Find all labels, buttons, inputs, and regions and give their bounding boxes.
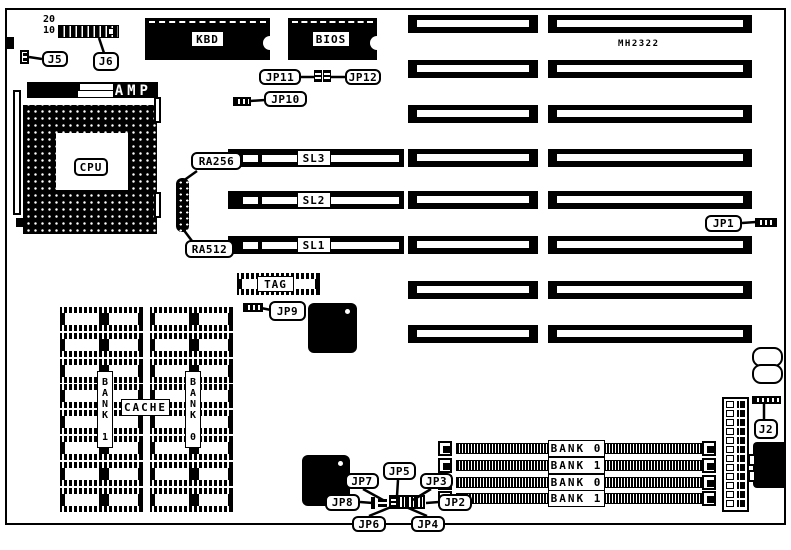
motherboard-diagram: 20 10 KBD BIOS AMP CPU TAG <box>0 0 791 550</box>
cache-chip <box>150 462 233 486</box>
power-pin <box>737 464 745 471</box>
chipset-qfp-upper <box>308 303 357 353</box>
kbd-chip-dash-line <box>149 21 266 23</box>
simm-latch-left <box>438 458 452 473</box>
power-pin <box>737 446 745 453</box>
isa-slot <box>408 281 538 299</box>
power-pin-hole <box>726 428 734 435</box>
power-pin <box>737 491 745 498</box>
cache-label: CACHE <box>121 399 170 416</box>
slot-label-sl2: SL2 <box>297 192 331 208</box>
amp-regulator: AMP <box>27 82 158 100</box>
power-pin-hole <box>726 464 734 471</box>
slot-label-sl3: SL3 <box>297 150 331 166</box>
power-pin <box>737 401 745 408</box>
amp-pad-1 <box>80 84 113 90</box>
cache-chip <box>60 488 143 512</box>
pin-number-10: 10 <box>38 25 55 36</box>
jp12-jumper <box>323 70 331 82</box>
ra-header <box>176 178 189 232</box>
din-notch-1 <box>748 454 756 466</box>
callout-tag-jp9: JP9 <box>269 301 306 321</box>
isa-slot <box>408 60 538 78</box>
isa-slot <box>548 15 752 33</box>
power-pin-hole <box>726 410 734 417</box>
left-edge-connector <box>13 90 21 215</box>
isa-slot <box>548 236 752 254</box>
callout-tag-jp4: JP4 <box>411 516 445 532</box>
isa-slot <box>408 325 538 343</box>
callout-tag-jp10: JP10 <box>264 91 307 107</box>
callout-tag-jp1: JP1 <box>705 215 742 232</box>
slot-key-notch <box>243 242 258 249</box>
isa-slot <box>408 191 538 209</box>
power-pin-hole <box>726 491 734 498</box>
isa-slot <box>408 149 538 167</box>
j6-pin1-mark <box>108 28 114 35</box>
pin-number-20: 20 <box>38 14 55 25</box>
local-bus-slot-sl2: SL2 <box>228 191 404 209</box>
bios-chip-label: BIOS <box>312 31 350 47</box>
local-bus-slot-sl3: SL3 <box>228 149 404 167</box>
isa-slot <box>408 105 538 123</box>
jumper-cell <box>407 495 416 509</box>
callout-tag-ra256: RA256 <box>191 152 242 170</box>
simm-bank-label: BANK 1 <box>548 490 605 507</box>
isa-slot <box>548 281 752 299</box>
bios-chip-notch <box>370 36 378 50</box>
jumper-block-dash1 <box>378 499 387 502</box>
callout-tag-jp3: JP3 <box>420 473 453 489</box>
cache-chip <box>60 307 143 331</box>
j5-connector <box>20 50 29 64</box>
cache-chip <box>60 333 143 357</box>
cache-bank0-label: BANK 0 <box>185 371 201 448</box>
power-pin <box>737 419 745 426</box>
isa-slot <box>548 149 752 167</box>
simm-bank-label: BANK 1 <box>548 457 605 474</box>
slot-key-notch <box>243 155 258 162</box>
local-bus-slot-sl1: SL1 <box>228 236 404 254</box>
power-pin <box>737 482 745 489</box>
callout-tag-jp8: JP8 <box>325 494 360 511</box>
board-edge-stub <box>5 37 14 49</box>
callout-tag-jp11: JP11 <box>259 69 301 85</box>
callout-tag-j5: J5 <box>42 51 68 67</box>
isa-slot <box>408 15 538 33</box>
callout-tag-jp6: JP6 <box>352 516 386 532</box>
simm-bank-label: BANK 0 <box>548 474 605 491</box>
jp11-jumper <box>314 70 322 82</box>
power-pin <box>737 500 745 507</box>
simm-bank-label: BANK 0 <box>548 440 605 457</box>
cpu-label: CPU <box>74 158 108 176</box>
kbd-chip-label: KBD <box>191 31 224 47</box>
power-connector <box>722 397 749 512</box>
jumper-cell <box>389 495 398 509</box>
j2-connector <box>752 396 781 404</box>
power-pin-hole <box>726 473 734 480</box>
power-pin <box>737 455 745 462</box>
callout-tag-jp12: JP12 <box>345 69 381 85</box>
simm-latch-right <box>702 441 716 456</box>
cache-chip <box>150 488 233 512</box>
jumper-cell <box>398 495 407 509</box>
callout-tag-jp5: JP5 <box>383 462 416 480</box>
power-pin <box>737 428 745 435</box>
callout-tag-ra512: RA512 <box>185 240 234 258</box>
isa-slot <box>408 236 538 254</box>
cache-chip <box>150 307 233 331</box>
isa-slot <box>548 60 752 78</box>
simm-latch-left <box>438 441 452 456</box>
callout-tag-j2: J2 <box>754 419 778 439</box>
simm-latch-right <box>702 491 716 506</box>
simm-latch-right <box>702 458 716 473</box>
power-pin-hole <box>726 437 734 444</box>
power-pin <box>737 437 745 444</box>
callout-tag-jp2: JP2 <box>438 494 472 511</box>
jumper-block-bracket <box>371 497 375 509</box>
power-pin-hole <box>726 419 734 426</box>
isa-slot <box>548 191 752 209</box>
cpu-socket-latch-bottom <box>154 192 161 218</box>
din-notch-2 <box>748 470 756 482</box>
isa-slot <box>548 105 752 123</box>
callout-tag-jp7: JP7 <box>345 473 379 489</box>
board-id: MH2322 <box>618 39 660 49</box>
keyboard-din-connector <box>753 442 786 488</box>
right-edge-footprint-bottom <box>752 364 783 384</box>
cache-bank1-label: BANK 1 <box>97 371 113 448</box>
power-pin-hole <box>726 455 734 462</box>
bios-chip-dash-line <box>292 21 373 23</box>
jumper-block-dash2 <box>378 504 387 507</box>
power-pin <box>737 410 745 417</box>
kbd-chip-notch <box>263 36 271 50</box>
cache-chip <box>150 333 233 357</box>
amp-pad-2 <box>78 91 113 97</box>
power-pin <box>737 473 745 480</box>
jp10-connector <box>233 97 251 106</box>
isa-slot <box>548 325 752 343</box>
callout-tag-j6: J6 <box>93 52 119 71</box>
slot-label-sl1: SL1 <box>297 237 331 253</box>
power-pin-hole <box>726 446 734 453</box>
amp-label: AMP <box>115 83 152 99</box>
cpu-socket-latch-top <box>154 97 161 123</box>
power-pin-hole <box>726 401 734 408</box>
tag-ram-label: TAG <box>257 276 294 292</box>
power-pin-hole <box>726 500 734 507</box>
jp9-connector <box>243 303 263 312</box>
jp1-connector <box>755 218 777 227</box>
power-pin-hole <box>726 482 734 489</box>
slot-key-notch <box>243 197 258 204</box>
jumper-cell <box>416 495 425 509</box>
simm-latch-right <box>702 475 716 490</box>
cache-chip <box>60 462 143 486</box>
